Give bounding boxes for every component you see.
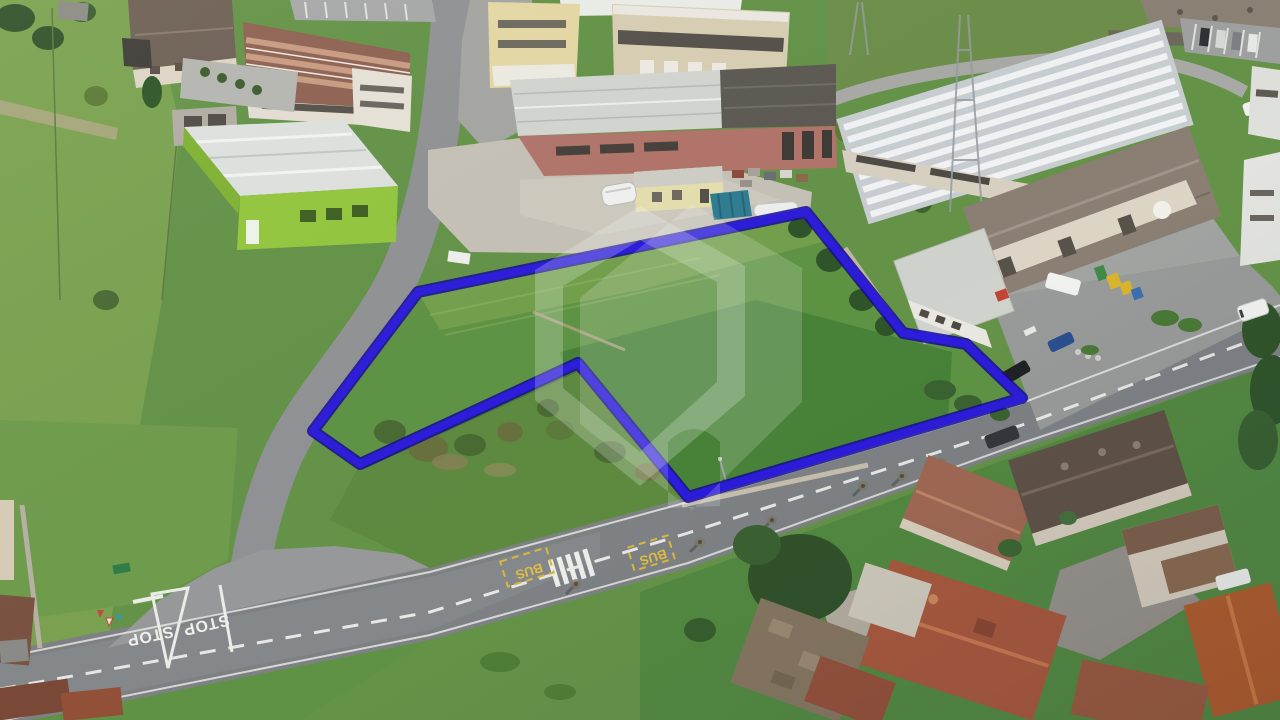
- aerial-photo: BUS BUS STOP STOP: [0, 0, 1280, 720]
- photo-tint: [0, 0, 1280, 720]
- scene-canvas: BUS BUS STOP STOP: [0, 0, 1280, 720]
